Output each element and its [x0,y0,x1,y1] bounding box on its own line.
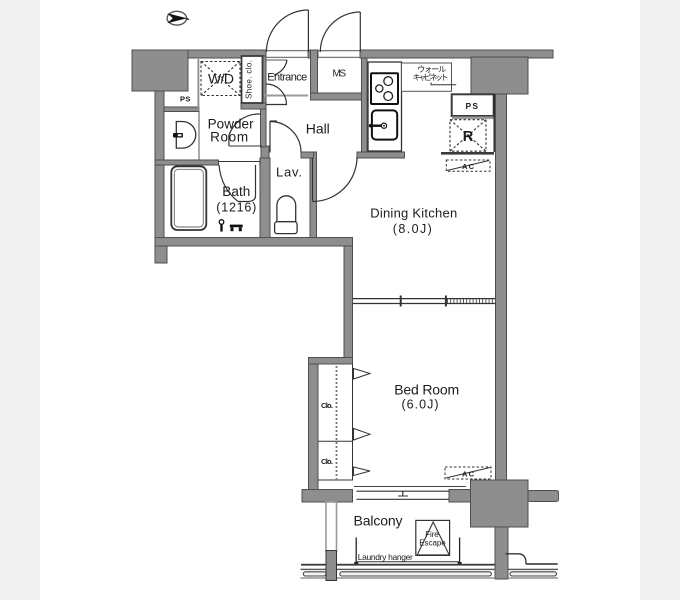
svg-text:(1216): (1216) [216,201,256,215]
svg-text:Bed Room: Bed Room [394,382,459,398]
svg-text:R: R [463,129,474,145]
svg-text:Entrance: Entrance [267,72,307,84]
svg-text:Clo.: Clo. [321,457,333,466]
svg-text:MS: MS [333,69,347,80]
svg-text:Hall: Hall [306,120,330,136]
svg-text:AC: AC [462,470,475,479]
svg-text:PS: PS [180,95,191,104]
svg-text:(8.0J): (8.0J) [393,222,432,236]
svg-text:AC: AC [462,162,475,171]
svg-text:W/D: W/D [208,71,234,87]
svg-text:Laundry hanger: Laundry hanger [358,552,413,562]
svg-text:Balcony: Balcony [354,512,403,528]
svg-text:Dining Kitchen: Dining Kitchen [370,206,457,221]
svg-text:Bath: Bath [222,184,250,199]
svg-text:Escape: Escape [419,539,446,548]
svg-text:(6.0J): (6.0J) [402,398,439,412]
svg-text:Shoe. clo.: Shoe. clo. [245,60,254,99]
svg-text:キャビネット: キャビネット [413,73,449,82]
svg-text:Room: Room [210,130,248,145]
svg-text:PS: PS [466,101,479,111]
svg-text:Clo.: Clo. [321,401,333,410]
svg-text:Lav.: Lav. [276,165,302,180]
